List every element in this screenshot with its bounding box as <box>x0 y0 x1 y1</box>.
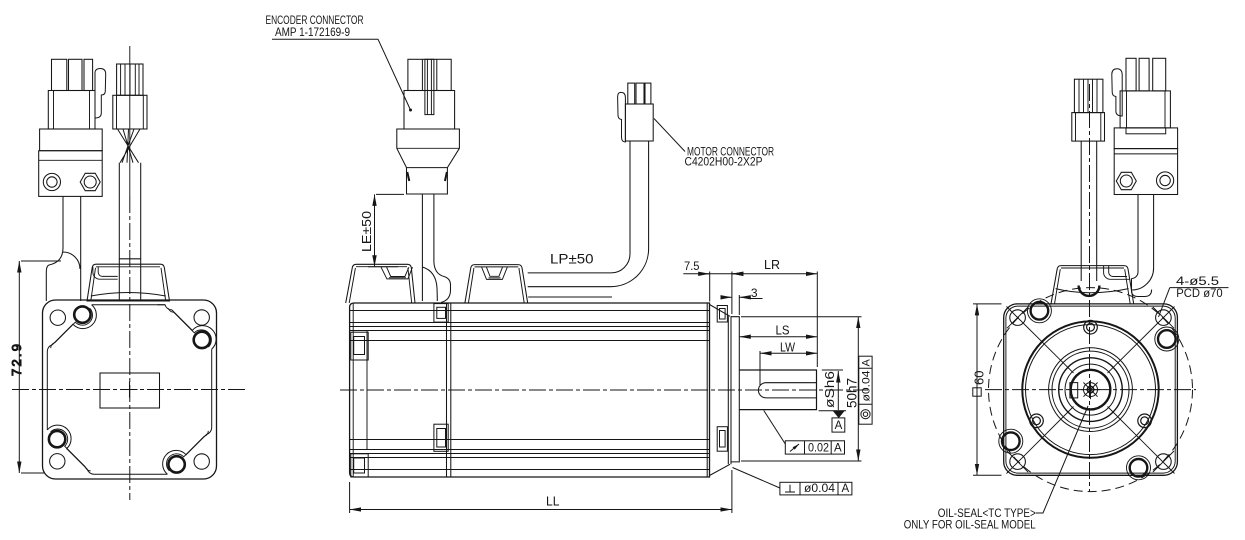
svg-text:PCD ø70: PCD ø70 <box>1176 286 1223 300</box>
svg-text:ENCODER CONNECTOR: ENCODER CONNECTOR <box>266 15 364 27</box>
svg-text:AMP 1-172169-9: AMP 1-172169-9 <box>275 27 350 39</box>
svg-text:ø0.04: ø0.04 <box>861 371 873 402</box>
svg-text:A: A <box>835 420 843 432</box>
svg-text:60: 60 <box>972 371 987 385</box>
svg-text:A: A <box>842 483 850 495</box>
svg-text:72.9: 72.9 <box>9 344 24 376</box>
svg-text:3: 3 <box>751 286 758 300</box>
svg-text:LP±50: LP±50 <box>550 252 594 267</box>
svg-text:LW: LW <box>780 339 796 354</box>
svg-text:A: A <box>834 442 842 454</box>
svg-text:7.5: 7.5 <box>684 259 700 273</box>
svg-text:LL: LL <box>546 494 560 509</box>
svg-text:A: A <box>861 359 873 367</box>
svg-text:LE±50: LE±50 <box>360 211 374 252</box>
svg-text:ONLY FOR OIL-SEAL MODEL: ONLY FOR OIL-SEAL MODEL <box>904 520 1037 532</box>
svg-text:øSh6: øSh6 <box>823 371 837 408</box>
svg-text:0.02: 0.02 <box>808 442 829 454</box>
svg-text:LS: LS <box>776 323 790 338</box>
svg-text:OIL-SEAL<TC TYPE>: OIL-SEAL<TC TYPE> <box>938 508 1036 520</box>
svg-text:C4202H00-2X2P: C4202H00-2X2P <box>685 157 763 169</box>
svg-text:ø0.04: ø0.04 <box>804 483 836 495</box>
svg-text:50h7: 50h7 <box>845 378 860 408</box>
svg-text:LR: LR <box>764 257 780 272</box>
